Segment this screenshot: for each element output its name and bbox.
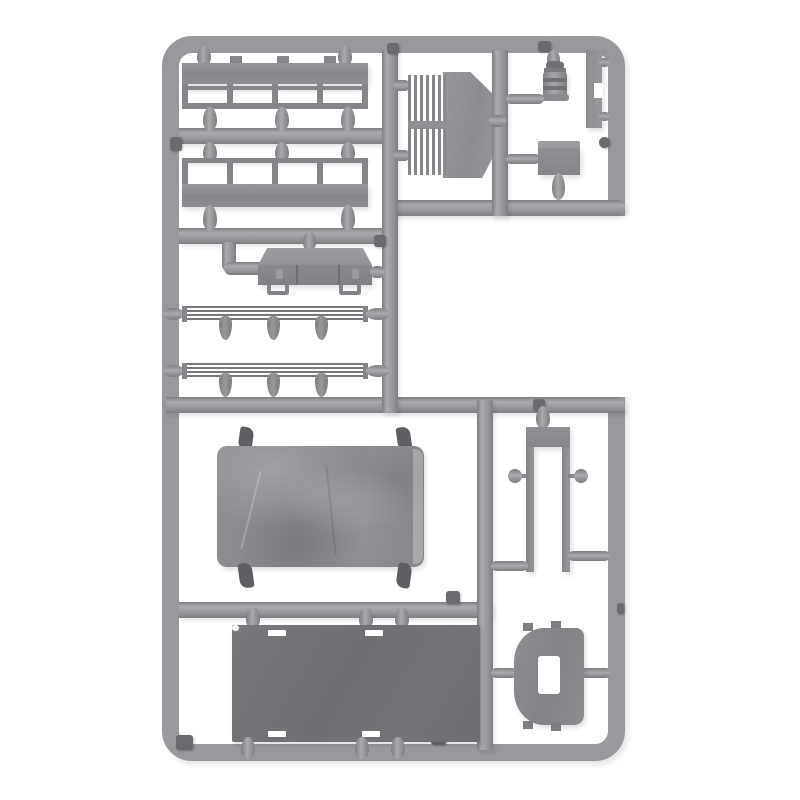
board-post — [272, 158, 278, 186]
board-post — [362, 158, 368, 186]
part-bed-floor-panel — [232, 625, 480, 742]
sprue-gate — [241, 737, 255, 759]
runner-vertical-right-top — [492, 50, 508, 216]
board-post — [182, 158, 188, 186]
sprue-gate — [489, 115, 506, 127]
marker-tab — [176, 735, 193, 750]
marker-tab — [538, 41, 551, 52]
strip-notch — [594, 83, 603, 98]
runner-lower-mid — [179, 602, 493, 618]
sprue-gate — [552, 173, 565, 200]
sprue-gate — [203, 205, 217, 231]
runner-vertical-center-top — [382, 50, 398, 413]
sprue-gate — [355, 737, 369, 759]
part-radiator-louver-body — [443, 72, 492, 178]
panel-tab — [523, 721, 533, 729]
board-post — [182, 84, 188, 109]
sprue-gate — [163, 308, 184, 320]
panel-slot — [365, 630, 383, 636]
panel-tab — [551, 723, 561, 731]
part-fuel-canister — [543, 72, 567, 96]
part-battery-box — [538, 148, 580, 175]
sprue-gate — [366, 365, 390, 377]
radiator-fins-bottom — [408, 128, 446, 175]
board-post — [362, 84, 368, 109]
sprue-gate — [341, 107, 355, 131]
tool-box-foot — [267, 284, 289, 295]
sprue-gate — [568, 551, 610, 561]
windshield-frame-leg-left — [526, 447, 534, 572]
sprue-gate — [203, 107, 217, 131]
sprue-gate — [275, 107, 289, 131]
sprue-gate — [599, 58, 610, 67]
sprue-gate — [599, 112, 610, 121]
sprue-gate — [341, 205, 355, 231]
sprue-gate — [366, 308, 390, 320]
cab-rear-window — [538, 656, 560, 694]
radiator-fins-top — [408, 75, 446, 122]
tool-box-seam — [338, 265, 340, 285]
marker-tab — [446, 591, 460, 604]
marker-tab — [374, 235, 386, 247]
board-post — [227, 84, 233, 109]
canister-rib — [543, 86, 567, 90]
sprue-gate — [491, 561, 528, 571]
tool-box-seam — [296, 265, 298, 285]
tool-box-foot — [339, 284, 361, 295]
board-post — [272, 84, 278, 109]
board-post — [317, 84, 323, 109]
sprue-photo — [0, 0, 800, 800]
tarp-edge-strip — [413, 449, 423, 564]
sprue-gate — [163, 365, 184, 377]
sprue-gate — [506, 154, 540, 164]
tool-box-latch — [352, 269, 359, 279]
part-canvas-tilt-cover — [217, 446, 424, 567]
board-post — [317, 158, 323, 186]
sprue-gate — [370, 266, 385, 278]
frame-notch-cutout — [604, 216, 636, 397]
canister-rib — [543, 78, 567, 82]
marker-tab — [387, 43, 399, 54]
panel-slot — [268, 630, 286, 636]
tool-box-latch — [276, 269, 283, 279]
mirror-disc — [574, 469, 588, 483]
sprue-gate — [581, 668, 611, 678]
part-stake-side-board-upper — [182, 63, 368, 84]
board-post — [227, 158, 233, 186]
panel-slot — [268, 731, 286, 737]
part-stake-side-board-lower — [182, 184, 368, 207]
rail-end-post — [182, 363, 187, 379]
canister-base — [541, 94, 569, 101]
marker-tab — [599, 137, 610, 148]
sprue-gate — [506, 94, 544, 104]
panel-slot — [362, 731, 380, 737]
sprue-gate — [391, 737, 405, 759]
marker-tab — [170, 137, 182, 151]
sprue-gate — [536, 406, 550, 429]
feeder-elbow-horizontal — [224, 262, 260, 275]
part-windshield-frame-header — [526, 427, 570, 447]
rail-end-post — [182, 306, 187, 322]
marker-tab — [617, 603, 624, 614]
panel-corner-notch — [232, 625, 239, 631]
mirror-disc — [508, 469, 522, 483]
part-tool-box-lid — [258, 248, 372, 265]
